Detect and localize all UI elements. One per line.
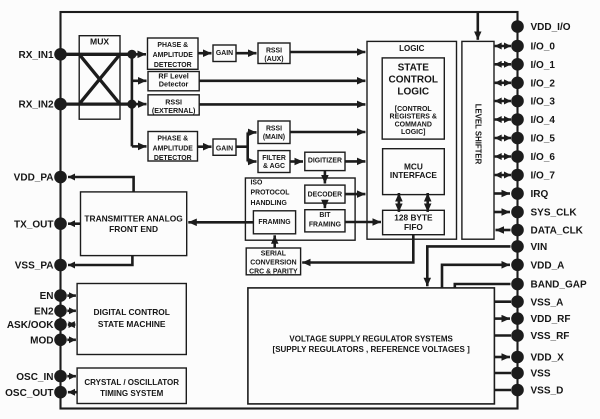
svg-text:LOGIC: LOGIC [399, 44, 425, 53]
svg-text:I/O_6: I/O_6 [531, 152, 556, 163]
svg-text:COMMAND: COMMAND [395, 121, 432, 128]
svg-text:VDD_PA: VDD_PA [14, 173, 54, 184]
svg-text:I/O_0: I/O_0 [531, 42, 556, 53]
svg-text:RSSI: RSSI [266, 48, 282, 55]
svg-text:(AUX): (AUX) [264, 56, 283, 63]
svg-text:AMPLITUDE: AMPLITUDE [153, 52, 194, 59]
svg-text:VSS_RF: VSS_RF [531, 331, 570, 342]
svg-text:VIN: VIN [531, 242, 548, 253]
svg-text:I/O_2: I/O_2 [531, 78, 556, 89]
svg-text:AMPLITUDE: AMPLITUDE [153, 145, 194, 152]
svg-text:LEVEL SHIFTER: LEVEL SHIFTER [473, 104, 482, 165]
svg-text:[SUPPLY REGULATORS , REFERENCE: [SUPPLY REGULATORS , REFERENCE VOLTAGES … [273, 345, 471, 354]
svg-text:CONVERSION: CONVERSION [250, 260, 296, 267]
svg-text:STATE MACHINE: STATE MACHINE [98, 319, 166, 329]
svg-text:128 BYTE: 128 BYTE [394, 212, 433, 222]
svg-text:BAND_GAP: BAND_GAP [531, 280, 587, 291]
svg-text:GAIN: GAIN [216, 145, 233, 152]
svg-text:VSS_D: VSS_D [531, 386, 564, 397]
svg-text:TRANSMITTER ANALOG: TRANSMITTER ANALOG [84, 213, 182, 223]
svg-text:DIGITIZER: DIGITIZER [308, 158, 342, 165]
svg-text:PROTOCOL: PROTOCOL [251, 190, 290, 197]
svg-text:TX_OUT: TX_OUT [14, 219, 53, 230]
svg-text:I/O_7: I/O_7 [531, 171, 556, 182]
svg-text:LOGIC]: LOGIC] [401, 129, 426, 136]
svg-text:I/O_1: I/O_1 [531, 60, 556, 71]
svg-text:PHASE &: PHASE & [157, 136, 188, 143]
svg-text:VDD_RF: VDD_RF [531, 314, 571, 325]
svg-text:VDD_A: VDD_A [531, 260, 565, 271]
svg-text:DIGITAL CONTROL: DIGITAL CONTROL [93, 307, 169, 317]
svg-text:RX_IN1: RX_IN1 [18, 50, 53, 61]
svg-text:I/O_3: I/O_3 [531, 97, 556, 108]
svg-text:SERIAL: SERIAL [261, 251, 286, 258]
svg-text:[CONTROL: [CONTROL [395, 106, 433, 113]
svg-text:EN2: EN2 [34, 306, 54, 317]
svg-text:OSC_IN: OSC_IN [16, 372, 53, 383]
svg-text:ASK/OOK: ASK/OOK [7, 320, 54, 331]
svg-text:MUX: MUX [90, 37, 109, 47]
svg-text:FRONT END: FRONT END [109, 224, 158, 234]
svg-text:DATA_CLK: DATA_CLK [531, 226, 584, 237]
svg-text:PHASE &: PHASE & [157, 42, 188, 49]
svg-text:TIMING SYSTEM: TIMING SYSTEM [100, 389, 163, 398]
svg-text:MOD: MOD [30, 335, 53, 346]
svg-text:VDD_I/O: VDD_I/O [531, 22, 571, 33]
svg-text:FIFO: FIFO [404, 222, 423, 232]
svg-text:CRC & PARITY: CRC & PARITY [249, 269, 298, 276]
svg-text:VDD_X: VDD_X [531, 353, 565, 364]
svg-text:RX_IN2: RX_IN2 [18, 100, 53, 111]
svg-text:STATE: STATE [398, 62, 430, 73]
svg-text:IRQ: IRQ [531, 189, 549, 200]
svg-text:BIT: BIT [319, 212, 331, 219]
svg-text:RSSI: RSSI [266, 126, 282, 133]
svg-text:HANDLING: HANDLING [251, 200, 287, 207]
svg-text:I/O_5: I/O_5 [531, 134, 556, 145]
svg-text:LOGIC: LOGIC [397, 86, 429, 97]
svg-text:VSS: VSS [531, 369, 551, 380]
svg-text:FRAMING: FRAMING [258, 219, 290, 226]
svg-text:CONTROL: CONTROL [389, 74, 438, 85]
svg-text:VOLTAGE SUPPLY REGULATOR SYSTE: VOLTAGE SUPPLY REGULATOR SYSTEMS [289, 335, 453, 344]
svg-text:DETECTOR: DETECTOR [154, 62, 192, 69]
svg-text:(MAIN): (MAIN) [263, 134, 285, 141]
svg-text:CRYSTAL / OSCILLATOR: CRYSTAL / OSCILLATOR [84, 378, 179, 387]
svg-text:(EXTERNAL): (EXTERNAL) [152, 106, 196, 115]
svg-text:GAIN: GAIN [216, 50, 233, 57]
svg-text:& AGC: & AGC [263, 163, 285, 170]
svg-text:DECODER: DECODER [308, 192, 342, 199]
svg-text:SYS_CLK: SYS_CLK [531, 208, 578, 219]
svg-text:EN: EN [40, 291, 54, 302]
svg-text:FILTER: FILTER [262, 155, 286, 162]
svg-text:OSC_OUT: OSC_OUT [5, 388, 53, 399]
svg-text:REGISTERS &: REGISTERS & [390, 114, 437, 121]
svg-text:INTERFACE: INTERFACE [390, 170, 437, 180]
svg-text:I/O_4: I/O_4 [531, 115, 556, 126]
svg-text:ISO: ISO [251, 180, 264, 187]
svg-text:DETECTOR: DETECTOR [154, 155, 192, 162]
svg-text:FRAMING: FRAMING [309, 221, 341, 228]
svg-text:Detector: Detector [159, 80, 189, 89]
svg-text:VSS_PA: VSS_PA [15, 261, 54, 272]
svg-text:VSS_A: VSS_A [531, 297, 564, 308]
